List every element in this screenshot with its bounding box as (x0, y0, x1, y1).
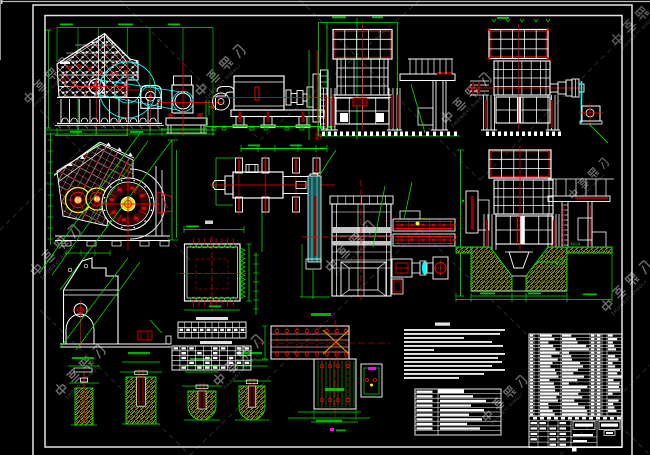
svg-text:4±0.5: 4±0.5 (570, 241, 581, 246)
